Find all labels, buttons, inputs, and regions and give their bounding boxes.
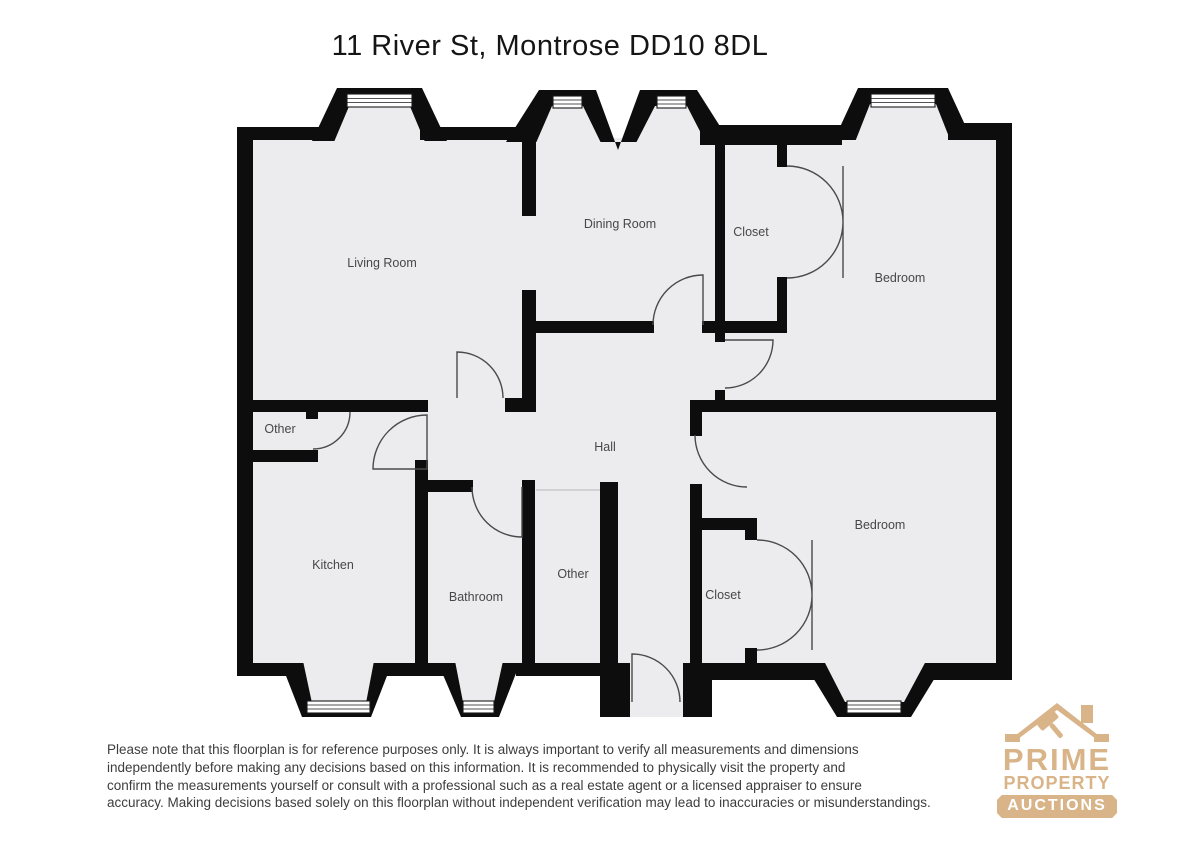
window	[657, 96, 686, 108]
room-label-bathroom: Bathroom	[449, 590, 503, 604]
window	[463, 701, 494, 713]
logo-roof-icon	[1005, 701, 1109, 743]
room-label-bedroom-top: Bedroom	[875, 271, 926, 285]
disclaimer-line: independently before making any decision…	[107, 759, 937, 777]
room-label-other-bottom: Other	[557, 567, 588, 581]
room-label-kitchen: Kitchen	[312, 558, 354, 572]
disclaimer-line: Please note that this floorplan is for r…	[107, 741, 937, 759]
window	[871, 94, 935, 107]
logo-prime-text: PRIME	[997, 748, 1117, 772]
logo: PRIME PROPERTY AUCTIONS	[997, 701, 1117, 818]
room-label-hall: Hall	[594, 440, 616, 454]
window	[307, 701, 370, 713]
room-label-closet-top: Closet	[733, 225, 769, 239]
entry-floor	[630, 663, 683, 717]
page: 11 River St, Montrose DD10 8DL	[0, 0, 1200, 848]
window	[347, 94, 412, 107]
window	[553, 96, 582, 108]
room-label-closet-bottom: Closet	[705, 588, 741, 602]
room-label-other-left: Other	[264, 422, 295, 436]
logo-auctions-banner: AUCTIONS	[997, 795, 1117, 818]
room-label-bedroom-bottom: Bedroom	[855, 518, 906, 532]
room-label-dining: Dining Room	[584, 217, 656, 231]
disclaimer: Please note that this floorplan is for r…	[107, 741, 937, 812]
disclaimer-line: accuracy. Making decisions based solely …	[107, 794, 937, 812]
disclaimer-line: confirm the measurements yourself or con…	[107, 777, 937, 795]
window	[847, 701, 901, 713]
room-label-living: Living Room	[347, 256, 416, 270]
logo-property-text: PROPERTY	[997, 773, 1117, 793]
